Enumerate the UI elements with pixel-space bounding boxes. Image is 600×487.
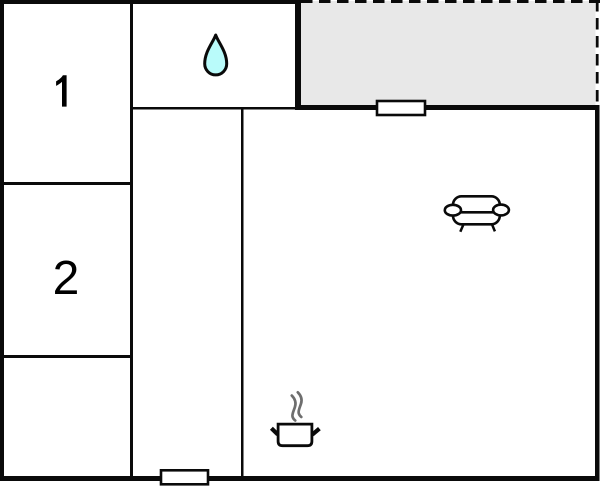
svg-text:2: 2 (53, 252, 80, 305)
